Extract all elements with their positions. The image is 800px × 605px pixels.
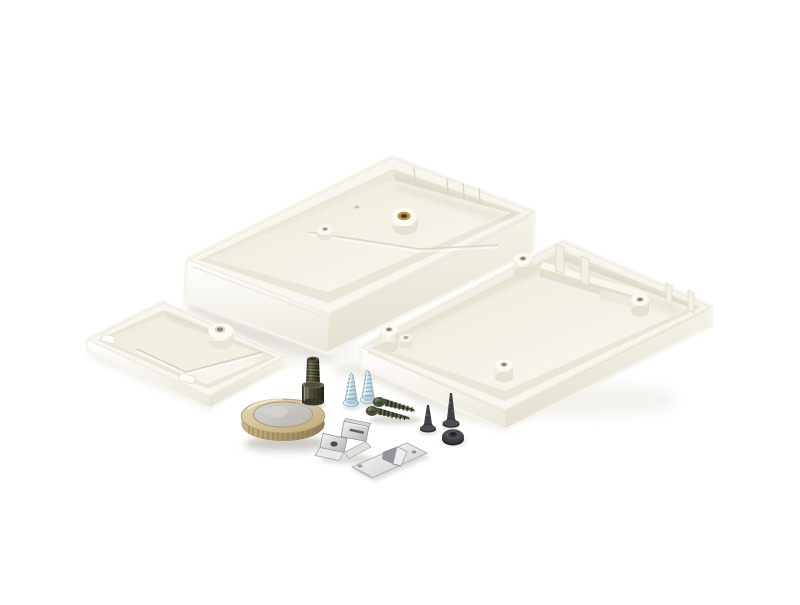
top-shell-screw-boss: [316, 225, 334, 240]
enclosure-kit-photo: [0, 0, 800, 605]
tapping-screws: [366, 397, 421, 425]
photo-stage: [0, 0, 800, 605]
cover-boss: [209, 323, 234, 349]
top-shell-pilot-hole: [355, 206, 360, 209]
rubber-grommet: [442, 429, 466, 445]
brass-insert-boss: [391, 208, 418, 235]
black-screw-short: [420, 405, 436, 433]
